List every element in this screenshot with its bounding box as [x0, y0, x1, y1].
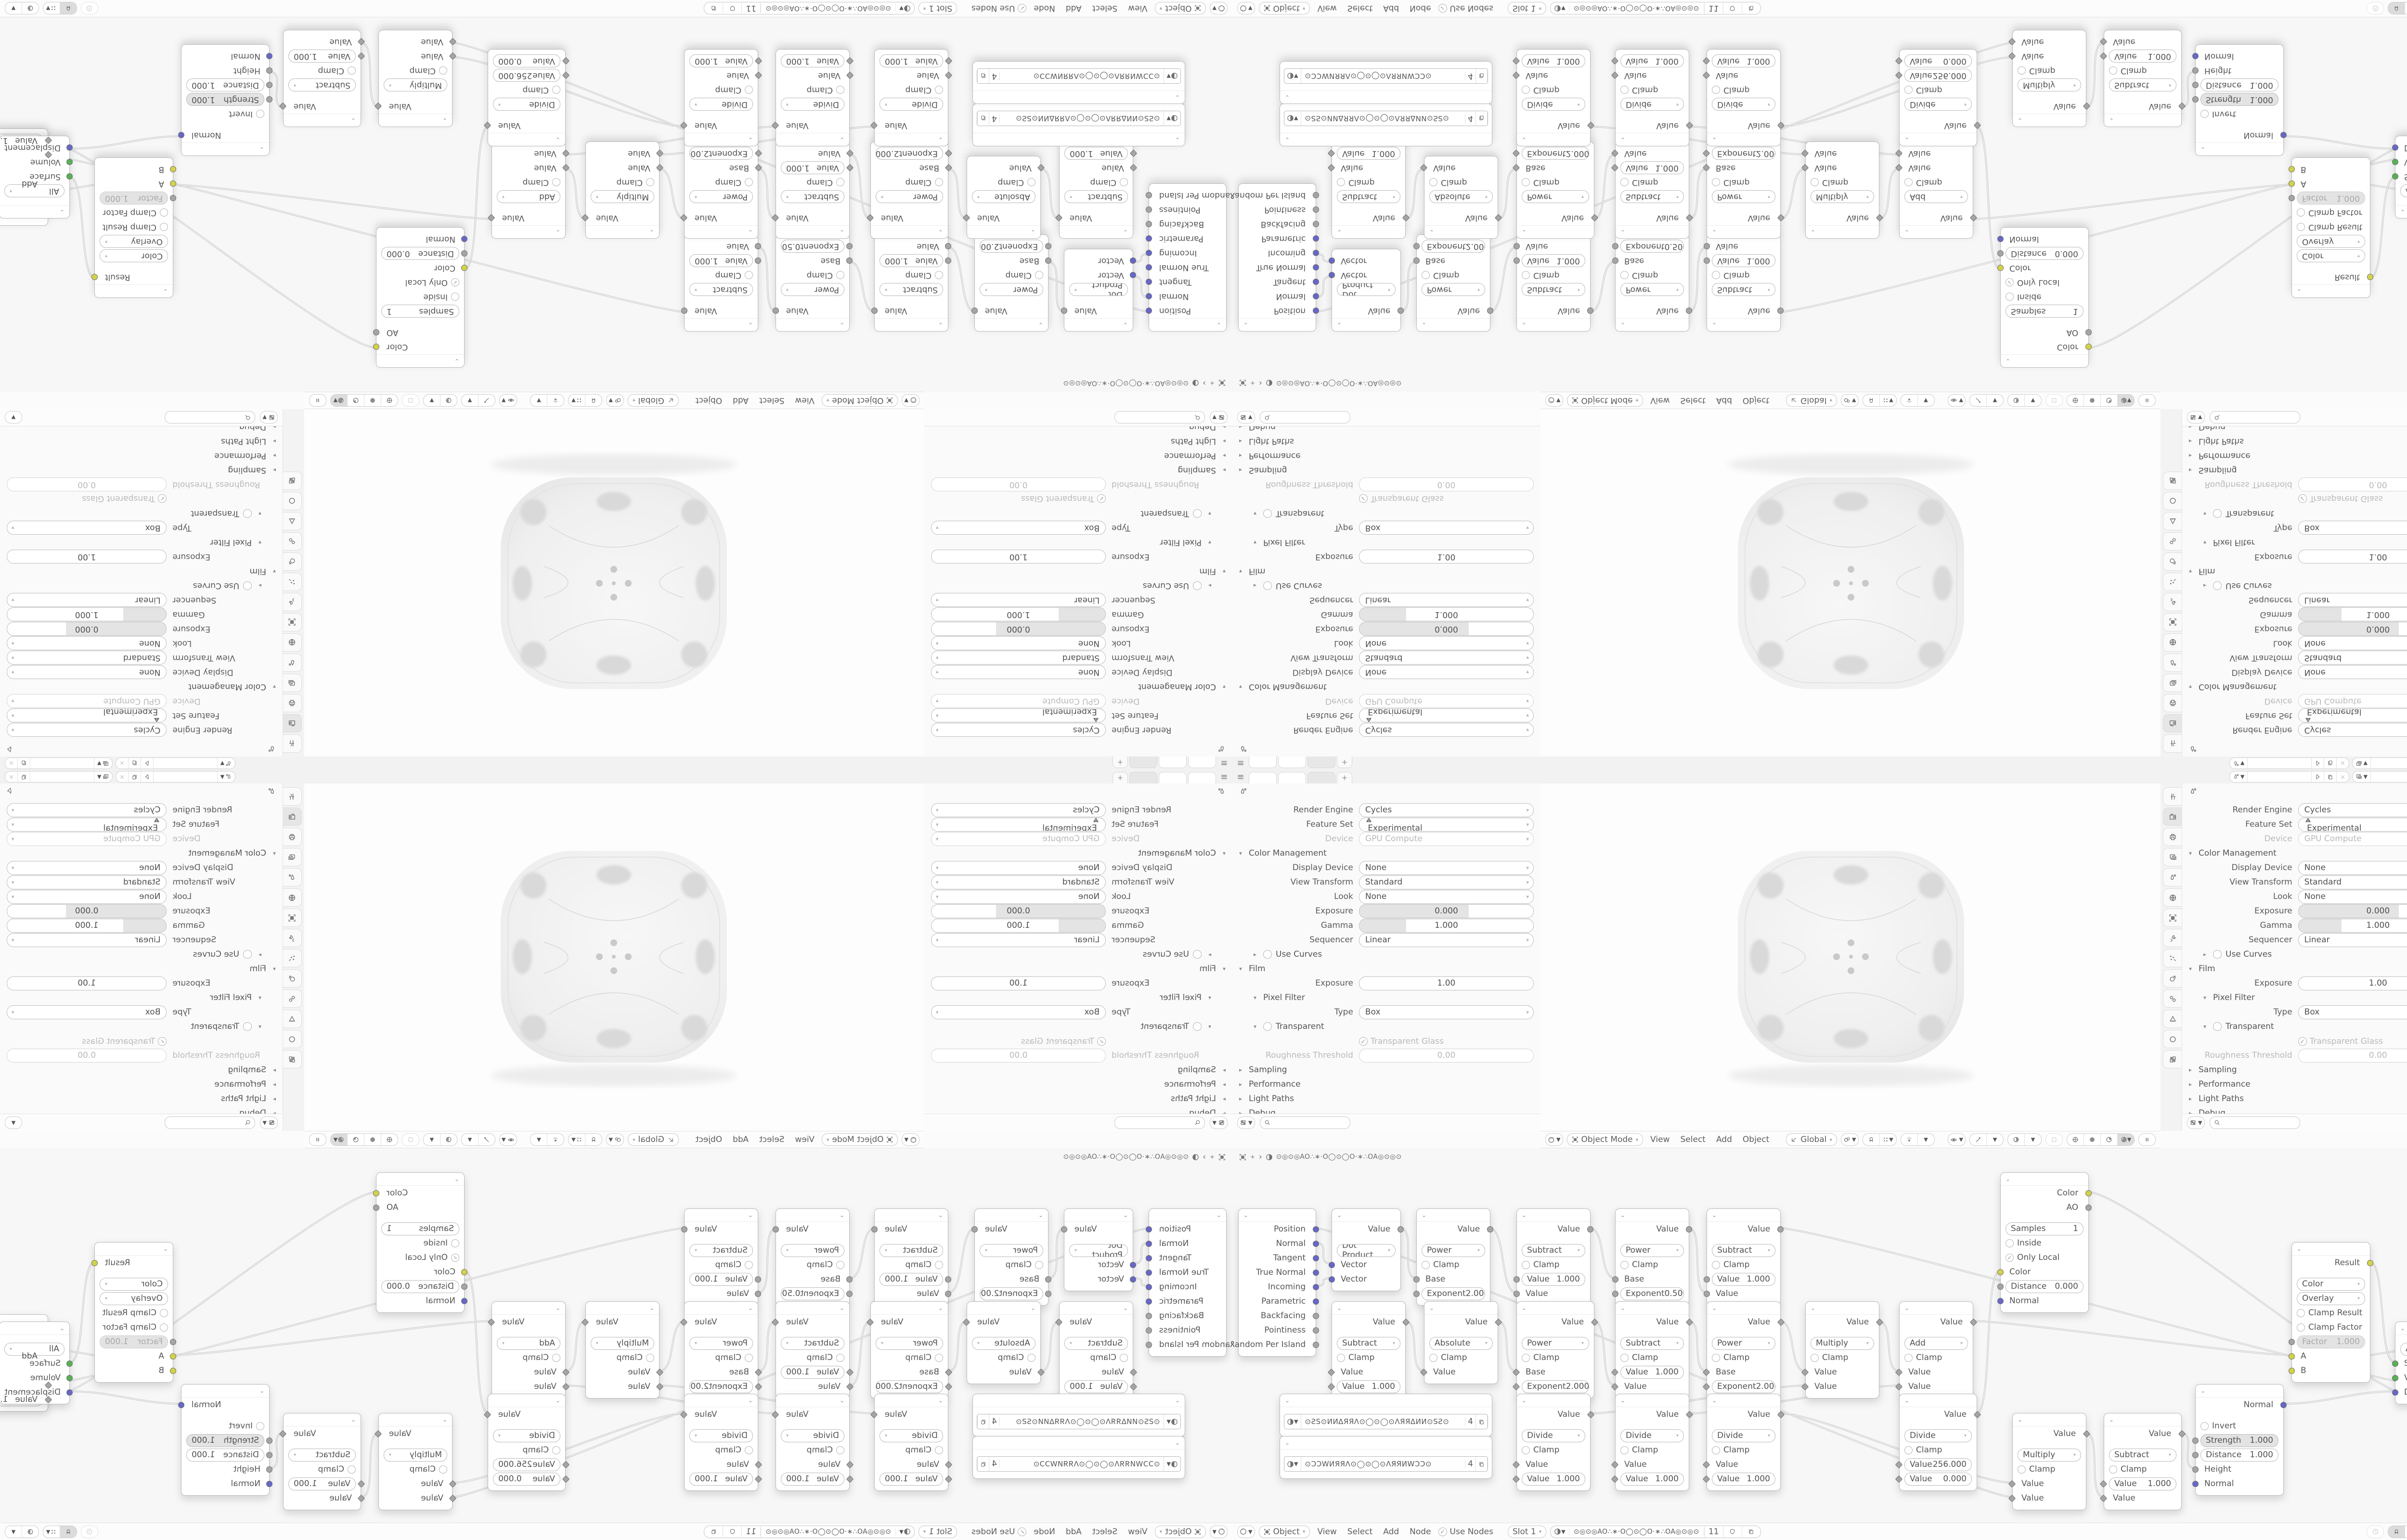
node-value-field[interactable]: Value1.000 [1620, 1473, 1684, 1486]
collapse-icon[interactable]: ⌄ [1904, 1397, 1909, 1404]
overlays-toggle[interactable]: ▾ [423, 1133, 457, 1146]
node-value-field[interactable]: Value1.000 [781, 1366, 844, 1379]
collapse-icon[interactable]: ⌄ [163, 288, 168, 295]
panel-section-color-management[interactable]: ▾Color Management [924, 680, 1232, 694]
node-checkbox[interactable]: Invert [2200, 1421, 2236, 1431]
properties-tab-constraint[interactable] [2163, 532, 2182, 551]
socket-input[interactable] [461, 1283, 467, 1290]
prop-checkbox-transparent-glass[interactable]: ✓Transparent Glass [1359, 1037, 1444, 1046]
socket-input[interactable] [461, 1269, 467, 1275]
socket-output[interactable] [1146, 1270, 1152, 1276]
shading-wireframe[interactable] [2067, 1134, 2084, 1145]
shader-menu-select[interactable]: Select [1089, 1527, 1121, 1537]
gizmos-toggle[interactable]: ▾ [1969, 394, 2004, 407]
collapse-icon[interactable]: ⌄ [840, 1212, 844, 1219]
node-enum-dropdown[interactable]: Subtract▾ [1620, 191, 1684, 204]
node[interactable]: ⌄Value Dot Product▾VectorVector [1064, 249, 1133, 332]
node-header[interactable]: ⌄ [776, 1302, 849, 1315]
prop-slider-gamma[interactable]: 1.000 [1359, 608, 1534, 622]
collapse-icon[interactable]: ⌄ [2297, 1245, 2302, 1252]
node-enum-dropdown[interactable]: Power▾ [781, 283, 844, 296]
node-enum-dropdown[interactable]: Power▾ [1712, 1337, 1775, 1350]
node[interactable]: ⌄▾⊙ƧS⊙ИИΔЯЯΛ⊙◯⊙◯⊙ΛЯЯΔИИ⊙SƧ⊙4 [972, 1394, 1185, 1437]
socket-input[interactable] [2289, 1353, 2295, 1360]
node[interactable]: ⌄Value Subtract▾ClampValue1.000Value [684, 1208, 758, 1306]
node-header[interactable]: ⌄ [2395, 1322, 2407, 1335]
node-header[interactable]: ⌄ [975, 1209, 1048, 1222]
node[interactable]: ⌄Value Multiply▾ClampValueValue [2012, 1413, 2086, 1510]
node[interactable]: ⌄Value Absolute▾ClampValue [1424, 1301, 1498, 1384]
transform-orientation-dropdown[interactable]: Global▾ [628, 1133, 679, 1146]
viewport-menu-select[interactable]: Select [1677, 1135, 1709, 1144]
socket-input[interactable] [461, 1298, 467, 1304]
node-checkbox[interactable]: ✓Only Local [405, 1253, 459, 1262]
app-menu-button[interactable]: ≡ [1216, 757, 1232, 769]
collapse-icon[interactable]: ⌄ [1175, 1439, 1180, 1446]
prop-checkbox-transparent-glass[interactable]: ✓Transparent Glass [2298, 494, 2383, 504]
view-layer-name-field[interactable] [30, 771, 94, 782]
collapse-icon[interactable]: ⌄ [1522, 1305, 1527, 1311]
gizmos-toggle[interactable]: ▾ [461, 394, 495, 407]
properties-tab-output[interactable] [2163, 694, 2182, 712]
socket-input[interactable] [1045, 1276, 1051, 1283]
panel-subsection-check[interactable]: ▸Use Curves [924, 947, 1232, 962]
node-checkbox[interactable]: Clamp Factor [103, 1322, 168, 1332]
socket-output[interactable] [1313, 1342, 1319, 1348]
collapse-icon[interactable]: ⌄ [2006, 1176, 2010, 1182]
node-enum-dropdown[interactable]: Power▾ [1620, 283, 1684, 296]
add-workspace-button[interactable]: + [1337, 772, 1352, 783]
prop-number-roughness-threshold[interactable]: 0.00 [1359, 478, 1534, 492]
node-checkbox[interactable]: Clamp [906, 1353, 943, 1362]
prop-dropdown-render-engine[interactable]: Cycles▾ [931, 803, 1106, 817]
prop-dropdown-view-transform[interactable]: Standard▾ [1359, 875, 1534, 889]
node-checkbox[interactable]: Clamp [523, 1445, 560, 1455]
node-enum-dropdown[interactable]: Subtract▾ [1620, 1337, 1684, 1350]
properties-tab-object[interactable] [283, 613, 302, 631]
viewport-3d[interactable] [304, 409, 924, 757]
prop-dropdown-view-transform[interactable]: Standard▾ [2298, 875, 2407, 889]
shading-wireframe[interactable] [2067, 395, 2084, 406]
node-header[interactable]: ⌄ [975, 318, 1048, 331]
shading-solid[interactable] [364, 395, 381, 406]
node-header[interactable]: ⌄ [1707, 1302, 1780, 1315]
prop-number-roughness-threshold[interactable]: 0.00 [931, 478, 1106, 492]
viewport-menu-select[interactable]: Select [756, 1135, 788, 1144]
panel-subsection-check[interactable]: ▾Transparent [0, 506, 283, 521]
visibility-dropdown[interactable]: ▾ [1948, 1133, 1966, 1146]
socket-output[interactable] [1146, 294, 1152, 300]
node-value-field[interactable]: Distance0.000 [2006, 247, 2083, 260]
node-header[interactable]: ⌄ [95, 284, 173, 297]
node-checkbox[interactable]: Clamp [1522, 1353, 1559, 1362]
properties-tab-material[interactable] [283, 492, 302, 510]
node-enum-dropdown[interactable]: Subtract▾ [1337, 191, 1400, 204]
node[interactable]: ⌄Value Divide▾ClampValueValue1.000 [1615, 1394, 1689, 1491]
panel-subsection-check[interactable]: ▾Transparent [2182, 506, 2407, 521]
node-value-field[interactable]: Value1.000 [1712, 255, 1775, 268]
node-enum-dropdown[interactable]: Subtract▾ [1712, 1244, 1775, 1257]
node-checkbox[interactable]: Clamp [1904, 178, 1942, 187]
node-checkbox[interactable]: Inside [2006, 292, 2042, 302]
prop-dropdown-device[interactable]: GPU Compute▾ [2298, 694, 2407, 708]
properties-tab-viewlayer[interactable] [283, 848, 302, 866]
node[interactable]: ⌄Value Divide▾ClampValueValue1.000 [1707, 1394, 1781, 1491]
prop-number-roughness-threshold[interactable]: 0.00 [2298, 478, 2407, 492]
material-id-selector[interactable]: ▾⊙ƧS⊙ИИΔЯЯΛ⊙◯⊙◯⊙ΛЯЯΔИИ⊙SƧ⊙4 [1284, 1414, 1488, 1429]
node-checkbox[interactable]: Clamp [906, 1445, 943, 1455]
node-value-field[interactable]: Distance1.000 [186, 1449, 264, 1462]
shading-rendered[interactable]: ▾ [331, 1134, 347, 1145]
workspace-tab[interactable] [1129, 757, 1157, 768]
pause-render-button[interactable] [309, 1133, 326, 1146]
collapse-icon[interactable]: ⌄ [1620, 321, 1625, 328]
collapse-icon[interactable]: ⌄ [1522, 229, 1527, 235]
node-checkbox[interactable]: Clamp [906, 85, 943, 95]
collapse-icon[interactable]: ⌄ [163, 1245, 168, 1252]
node[interactable]: ⌄Color AO Samples1Inside✓Only LocalColor… [2000, 1172, 2089, 1313]
node-value-field[interactable]: Value1.000 [2109, 1477, 2176, 1490]
proportional-editing[interactable]: ▾ [530, 1133, 564, 1146]
node-value-field[interactable]: Value1.000 [1620, 1366, 1684, 1379]
node[interactable]: ⌄Value Subtract▾ClampValue1.000Value [1615, 1301, 1689, 1399]
collapse-icon[interactable]: ⌄ [1712, 1397, 1717, 1404]
prop-dropdown-display-device[interactable]: None▾ [2298, 861, 2407, 875]
node-checkbox[interactable]: Clamp [1712, 270, 1749, 280]
collapse-icon[interactable]: ⌄ [454, 1176, 459, 1182]
node[interactable]: ⌄Value Subtract▾ClampValue1.000Value [1707, 234, 1781, 332]
material-id-selector[interactable]: ▾⊙ƧS⊙ИИΔЯЯΛ⊙◯⊙◯⊙ΛЯЯΔИИ⊙SƧ⊙4 [977, 1414, 1181, 1429]
properties-tab-particles[interactable] [2163, 573, 2182, 591]
node[interactable]: ⌄Value Power▾ClampBaseExponent2.000 [684, 141, 758, 239]
prop-dropdown-sequencer[interactable]: Linear▾ [2298, 593, 2407, 607]
node-enum-dropdown[interactable]: Multiply▾ [384, 79, 447, 92]
prop-dropdown-look[interactable]: None▾ [1359, 890, 1534, 904]
collapse-icon[interactable]: ⌄ [649, 1305, 654, 1311]
node[interactable]: ⌄Value Subtract▾ClampValue1.000Value [1707, 1208, 1781, 1306]
socket-input[interactable] [1329, 258, 1335, 264]
node-enum-dropdown[interactable]: Subtract▾ [689, 1244, 753, 1257]
socket-input[interactable] [2392, 174, 2398, 180]
node-value-field[interactable]: Value1.000 [1337, 1380, 1400, 1393]
node-value-field[interactable]: Value1.000 [1522, 255, 1585, 268]
node-header[interactable]: ⌄ [1060, 1302, 1133, 1315]
viewport-menu-object[interactable]: Object [692, 1135, 725, 1144]
socket-input[interactable] [1704, 1291, 1710, 1297]
node-value-field[interactable]: Strength1.000 [2200, 93, 2278, 106]
app-menu-button[interactable]: ≡ [1216, 771, 1232, 783]
node-enum-dropdown[interactable]: Overlay▾ [100, 235, 168, 248]
xray-toggle[interactable] [402, 1133, 419, 1146]
socket-output[interactable] [373, 1205, 379, 1211]
collapse-icon[interactable]: ⌄ [2200, 146, 2205, 153]
shader-menu-node[interactable]: Node [1030, 1527, 1058, 1537]
panel-section-performance[interactable]: ▸Performance [2182, 1077, 2407, 1091]
proportional-editing[interactable]: ▾ [530, 394, 564, 407]
shader-editor-type-button[interactable]: ▾ [1237, 2, 1255, 15]
node-value-field[interactable]: Value1.000 [689, 255, 753, 268]
prop-dropdown-display-device[interactable]: None▾ [7, 861, 167, 875]
panel-subsection-check[interactable]: ▾Transparent [0, 1019, 283, 1034]
socket-output[interactable] [871, 308, 878, 314]
prop-dropdown-type[interactable]: Box▾ [1359, 1005, 1534, 1019]
shading-solid[interactable] [2084, 1134, 2101, 1145]
panel-section-color-management[interactable]: ▾Color Management [924, 846, 1232, 860]
slot-dropdown[interactable]: Slot 1▾ [919, 1526, 957, 1538]
visibility-dropdown[interactable]: ▾ [499, 394, 517, 407]
node-enum-dropdown[interactable]: Multiply▾ [1811, 1337, 1874, 1350]
node-checkbox[interactable]: ✓Only Local [2006, 278, 2059, 287]
node-checkbox[interactable]: Clamp [998, 1353, 1035, 1362]
node-value-field[interactable]: Exponent2.000 [980, 1287, 1043, 1300]
node[interactable]: ⌄Value Dot Product▾VectorVector [1332, 1208, 1401, 1291]
socket-input[interactable] [945, 1276, 951, 1283]
node-header[interactable]: ⌄ [1517, 1302, 1594, 1315]
socket-input[interactable] [1997, 265, 2004, 271]
socket-output[interactable] [91, 274, 98, 281]
node-value-field[interactable]: Exponent2.000 [689, 147, 753, 160]
prop-dropdown-type[interactable]: Box▾ [7, 521, 167, 535]
pivot-point-dropdown[interactable]: ▾ [1841, 1133, 1859, 1146]
panel-section-light-paths[interactable]: ▸Light Paths [0, 434, 283, 449]
node-snapping-controls[interactable]: ▾ [43, 1526, 77, 1538]
viewport-menu-add[interactable]: Add [729, 1135, 752, 1144]
node-enum-dropdown[interactable]: Subtract▾ [880, 1244, 943, 1257]
prop-dropdown-feature-set[interactable]: Experimental▾ [931, 818, 1106, 832]
shader-editor-canvas[interactable]: ⌄Position Normal Tangent True Normal Inc… [0, 17, 1232, 392]
collapse-icon[interactable]: ⌄ [748, 229, 753, 235]
socket-input[interactable] [2192, 1452, 2199, 1458]
node-value-field[interactable]: Samples1 [2006, 305, 2083, 318]
node[interactable]: ⌄Result Color▾Overlay▾Clamp ResultClamp … [94, 157, 173, 298]
socket-output[interactable] [373, 1190, 379, 1196]
node-checkbox[interactable]: Clamp [318, 1464, 356, 1474]
socket-input[interactable] [2192, 68, 2199, 74]
node-checkbox[interactable]: Clamp [807, 178, 844, 187]
node-checkbox[interactable]: Clamp [1429, 1353, 1467, 1362]
node-header[interactable]: ⌄ [181, 142, 269, 155]
node-header[interactable]: ⌄ [492, 1302, 565, 1315]
collapse-icon[interactable]: ⌄ [259, 1387, 264, 1394]
node[interactable]: ⌄Value Multiply▾ClampValueValue [1805, 1301, 1879, 1399]
panel-subsection-check[interactable]: ▾Transparent [924, 506, 1232, 521]
properties-search-field[interactable] [165, 1116, 255, 1129]
snapping-controls[interactable]: ▾ [568, 394, 602, 407]
prop-dropdown-render-engine[interactable]: Cycles▾ [7, 723, 167, 737]
collapse-icon[interactable]: ⌄ [748, 1212, 753, 1219]
panel-section-film[interactable]: ▾Film [924, 962, 1232, 976]
pin-id-button[interactable] [6, 745, 13, 753]
users-count-badge[interactable]: 11 [1704, 1527, 1723, 1537]
properties-tab-render[interactable] [2163, 714, 2182, 732]
node-enum-dropdown[interactable]: Subtract▾ [1522, 283, 1585, 296]
node-enum-dropdown[interactable]: Color▾ [100, 1278, 168, 1291]
node-value-field[interactable]: Value1.000 [689, 55, 753, 68]
node-header[interactable]: ⌄ [875, 318, 948, 331]
socket-input[interactable] [1514, 1276, 1520, 1283]
node-checkbox[interactable]: Clamp [1904, 1445, 1942, 1455]
node-checkbox[interactable]: Clamp [1712, 178, 1749, 187]
prop-dropdown-sequencer[interactable]: Linear▾ [1359, 593, 1534, 607]
properties-tab-world[interactable] [283, 633, 302, 652]
node[interactable]: ⌄Value Divide▾ClampValueValue1.000 [684, 1394, 758, 1491]
socket-input[interactable] [1130, 1262, 1136, 1268]
prop-checkbox-transparent-glass[interactable]: ✓Transparent Glass [1359, 494, 1444, 504]
panel-section-performance[interactable]: ▸Performance [924, 449, 1232, 463]
collapse-icon[interactable]: ⌄ [748, 321, 753, 328]
socket-output[interactable] [1398, 1226, 1404, 1232]
socket-output[interactable] [1146, 1255, 1152, 1261]
shading-material[interactable] [2101, 1134, 2118, 1145]
node-enum-dropdown[interactable]: Subtract▾ [880, 283, 943, 296]
properties-tab-output[interactable] [2163, 828, 2182, 846]
node-enum-dropdown[interactable]: Add▾ [497, 1337, 560, 1350]
properties-tab-scene[interactable] [2163, 654, 2182, 672]
collapse-icon[interactable]: ⌄ [1712, 321, 1717, 328]
view-layer-selector[interactable]: ▾ [2352, 757, 2407, 769]
editor-type-button[interactable]: ▾ [1237, 411, 1255, 424]
node-enum-dropdown[interactable]: Absolute▾ [1429, 1337, 1493, 1350]
scene-name-field[interactable] [153, 758, 217, 769]
prop-dropdown-render-engine[interactable]: Cycles▾ [1359, 723, 1534, 737]
node[interactable]: ⌄Value Power▾ClampBaseExponent2.000 [974, 234, 1048, 332]
collapse-icon[interactable]: ⌄ [938, 1397, 943, 1404]
node-checkbox[interactable]: Clamp [410, 1464, 447, 1474]
collapse-icon[interactable]: ⌄ [1175, 1397, 1180, 1404]
properties-tab-modifier[interactable] [283, 929, 302, 947]
shading-mode-switch[interactable]: ▾ [2067, 1133, 2135, 1146]
prop-number-exposure[interactable]: 1.00 [1359, 550, 1534, 564]
node-checkbox[interactable]: Clamp [1006, 1260, 1043, 1270]
panel-section-performance[interactable]: ▸Performance [2182, 449, 2407, 463]
view-layer-name-field[interactable] [2371, 771, 2407, 782]
socket-input[interactable] [170, 1353, 176, 1360]
properties-tab-physics[interactable] [283, 969, 302, 988]
node-enum-dropdown[interactable]: Power▾ [876, 191, 943, 204]
app-menu-button[interactable]: ≡ [1232, 757, 1249, 769]
node-value-field[interactable]: Exponent2.000 [980, 240, 1043, 253]
node-checkbox[interactable]: Invert [229, 109, 264, 119]
prop-dropdown-look[interactable]: None▾ [1359, 637, 1534, 651]
node-header[interactable]: ⌄ [2001, 1173, 2088, 1186]
node-enum-dropdown[interactable]: Divide▾ [1712, 98, 1775, 111]
workspace-tab[interactable] [1159, 757, 1187, 768]
prop-number-exposure[interactable]: 1.00 [2298, 550, 2407, 564]
node-header[interactable]: ⌄ [685, 225, 758, 238]
editor-type-button[interactable]: ▾ [260, 411, 278, 424]
node-enum-dropdown[interactable]: Subtract▾ [1712, 283, 1775, 296]
collapse-icon[interactable]: ⌄ [556, 1305, 560, 1311]
socket-input[interactable] [66, 1360, 73, 1367]
node-header[interactable]: ⌄ [1707, 1209, 1780, 1222]
node-value-field[interactable]: Samples1 [2006, 1222, 2083, 1235]
viewport-3d[interactable] [1540, 409, 2161, 757]
shader-type-dropdown[interactable]: Object▾ [1259, 2, 1310, 15]
node-header[interactable]: ⌄ [95, 1243, 173, 1256]
node[interactable]: ⌄Value Subtract▾ClampValue1.000Value [1516, 1208, 1591, 1306]
properties-options-button[interactable]: ▾ [5, 1116, 22, 1129]
node[interactable]: ⌄Value Power▾ClampBaseExponent0.500 [1615, 234, 1689, 332]
node-checkbox[interactable]: Clamp [1522, 178, 1559, 187]
panel-section-film[interactable]: ▾Film [924, 564, 1232, 578]
collapse-icon[interactable]: ⌄ [938, 1305, 943, 1311]
node-enum-dropdown[interactable]: Multiply▾ [591, 1337, 654, 1350]
node[interactable]: ⌄Value Multiply▾ClampValueValue [1805, 141, 1879, 239]
properties-tab-tool[interactable] [2163, 787, 2182, 806]
node-value-field[interactable]: Exponent2.000 [1422, 240, 1485, 253]
prop-dropdown-display-device[interactable]: None▾ [931, 861, 1106, 875]
node-checkbox[interactable]: Inside [423, 292, 459, 302]
node-enum-dropdown[interactable]: Color▾ [100, 250, 168, 263]
node-checkbox[interactable]: Clamp Result [103, 1308, 168, 1318]
prop-slider-exposure[interactable]: 0.000 [1359, 622, 1534, 636]
socket-input[interactable] [1997, 1283, 2004, 1290]
node-enum-dropdown[interactable]: Divide▾ [1620, 98, 1684, 111]
node-checkbox[interactable]: Clamp [1620, 178, 1658, 187]
socket-input[interactable] [2392, 159, 2398, 166]
panel-section-color-management[interactable]: ▾Color Management [0, 846, 283, 860]
editor-type-button[interactable]: ▾ [2187, 1116, 2205, 1129]
socket-input[interactable] [2289, 1368, 2295, 1374]
properties-tab-material[interactable] [2163, 492, 2182, 510]
material-name[interactable]: ⊙◎⊙◎AO∴∗·O◯⊙◯O·∗∴OA◎⊙◎⊙ [1569, 5, 1704, 13]
material-id-block[interactable]: ▾⊙◎⊙◎AO∴∗·O◯⊙◯O·∗∴OA◎⊙◎⊙11 [704, 2, 915, 15]
node-header[interactable]: ⌄ [586, 1302, 659, 1315]
node-enum-dropdown[interactable]: Power▾ [1422, 1244, 1485, 1257]
node[interactable]: ⌄Value Subtract▾ClampValue1.000Value [283, 30, 361, 127]
collapse-icon[interactable]: ⌄ [556, 136, 560, 143]
socket-output[interactable] [178, 1402, 184, 1408]
collapse-icon[interactable]: ⌄ [840, 229, 844, 235]
transform-orientation-dropdown[interactable]: Global▾ [1786, 1133, 1837, 1146]
panel-section-film[interactable]: ▾Film [1232, 564, 1540, 578]
node[interactable]: ⌄Value Absolute▾ClampValue [1424, 156, 1498, 239]
workspace-tab[interactable] [1249, 757, 1277, 768]
node-enum-dropdown[interactable]: Dot Product▾ [1337, 1244, 1396, 1257]
collapse-icon[interactable]: ⌄ [1904, 1305, 1909, 1311]
node[interactable]: ⌄Value Divide▾ClampValue256.000Value0.00… [1899, 49, 1977, 146]
use-nodes-checkbox[interactable]: ✓Use Nodes [971, 4, 1026, 13]
prop-dropdown-display-device[interactable]: None▾ [1359, 861, 1534, 875]
node[interactable]: ⌄All▾SurfaceVolumeDisplacement [2395, 1322, 2407, 1404]
node-header[interactable]: ⌄ [0, 205, 69, 218]
properties-search-field[interactable] [2210, 411, 2300, 424]
socket-output[interactable] [1146, 221, 1152, 228]
node-enum-dropdown[interactable]: Divide▾ [781, 98, 844, 111]
node-header[interactable]: ⌄ [181, 1385, 269, 1398]
socket-input[interactable] [1612, 1276, 1618, 1283]
prop-checkbox-transparent-glass[interactable]: ✓Transparent Glass [1021, 1037, 1106, 1046]
node-header[interactable]: ⌄ [2292, 284, 2370, 297]
shader-menu-node[interactable]: Node [1030, 4, 1058, 13]
viewport-menu-select[interactable]: Select [756, 396, 788, 405]
node-checkbox[interactable]: Clamp [1712, 1445, 1749, 1455]
node-checkbox[interactable]: Clamp Factor [103, 208, 168, 218]
node-checkbox[interactable]: Clamp [2018, 1464, 2055, 1474]
scene-selector[interactable]: ▾ [116, 757, 236, 769]
copy-material-button[interactable] [704, 1527, 723, 1537]
node-checkbox[interactable]: Clamp [1090, 1353, 1128, 1362]
collapse-icon[interactable]: ⌄ [1123, 1212, 1128, 1219]
socket-input[interactable] [755, 1276, 761, 1283]
socket-output[interactable] [1146, 279, 1152, 285]
material-id-selector[interactable]: ▾⊙ƆƆWИЯЯΛ⊙◯⊙◯⊙ΛЯЯИWƆƆ⊙4 [1284, 1456, 1488, 1472]
panel-section-performance[interactable]: ▸Performance [924, 1077, 1232, 1091]
collapse-icon[interactable]: ⌄ [1620, 1212, 1625, 1219]
node-checkbox[interactable]: Clamp [998, 178, 1035, 187]
node-header[interactable]: ⌄ [1707, 225, 1780, 238]
mode-dropdown[interactable]: Object Mode▾ [1567, 1133, 1643, 1146]
